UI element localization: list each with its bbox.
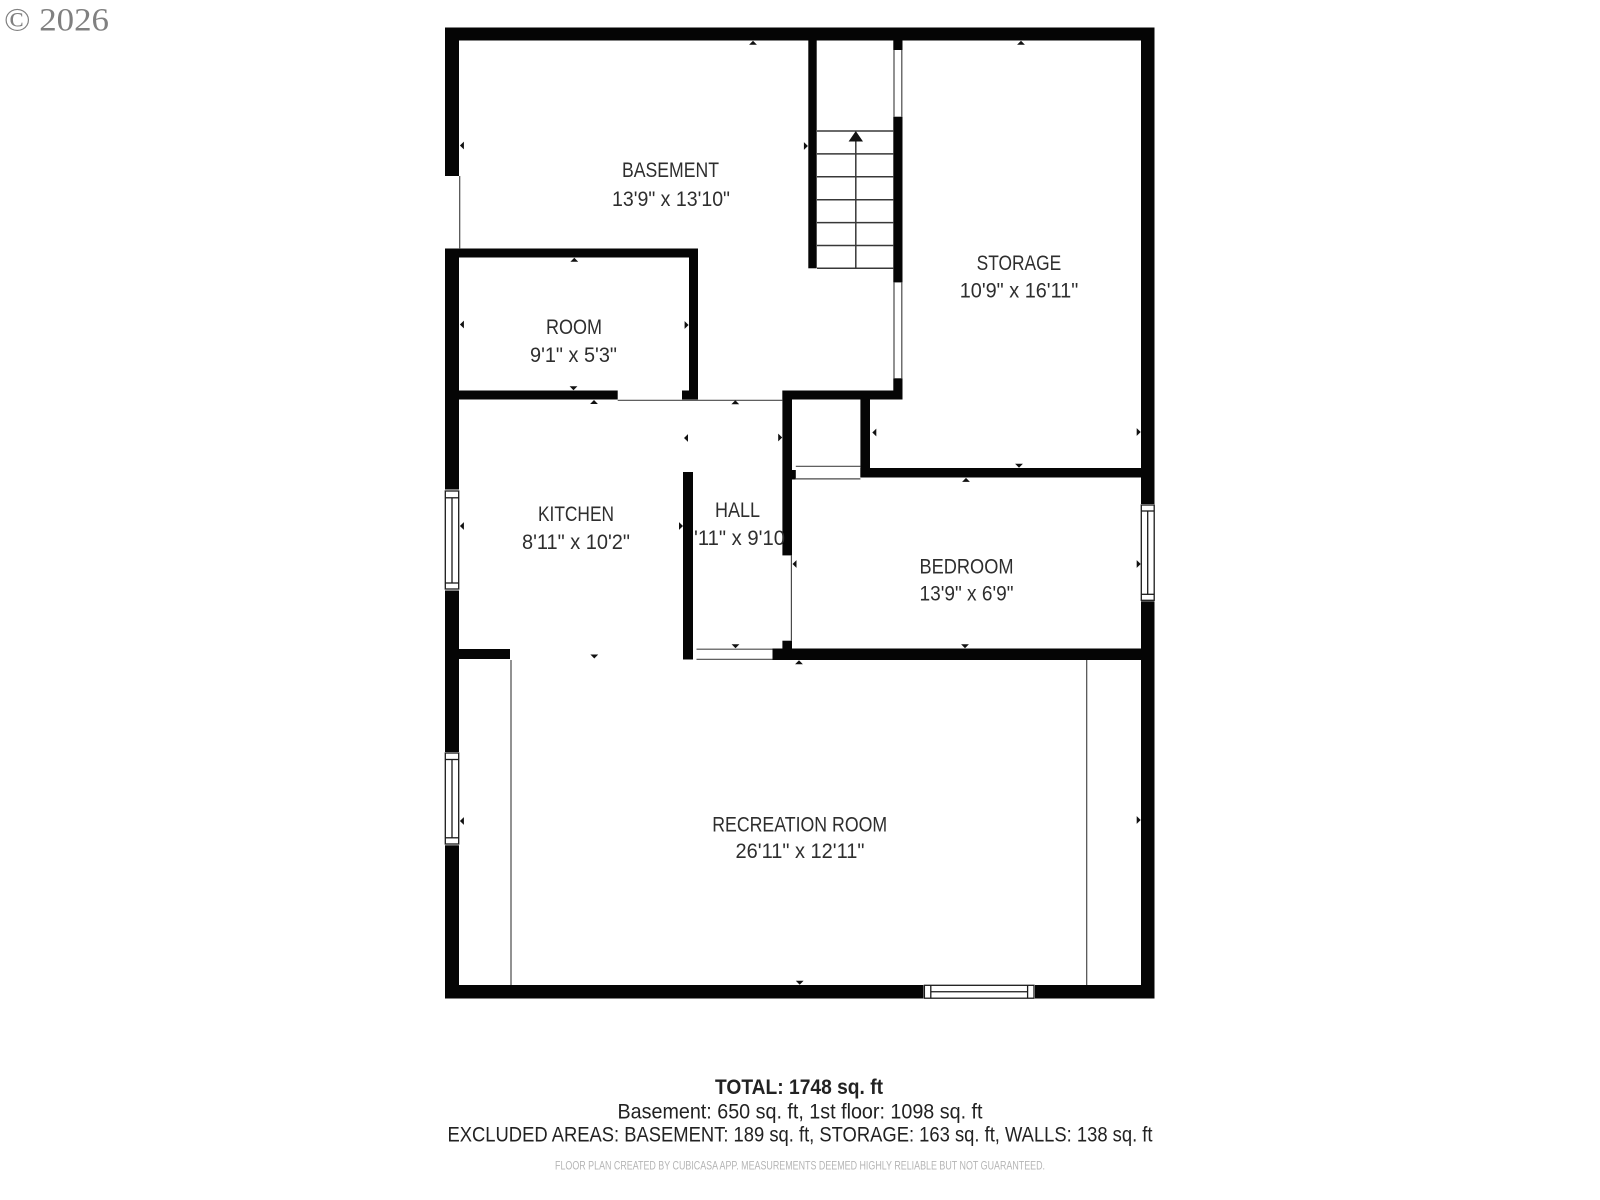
svg-text:BASEMENT: BASEMENT [622,159,719,182]
svg-text:EXCLUDED AREAS: BASEMENT: 189: EXCLUDED AREAS: BASEMENT: 189 sq. ft, ST… [448,1123,1153,1147]
svg-text:9'1" x 5'3": 9'1" x 5'3" [530,344,617,367]
svg-text:KITCHEN: KITCHEN [538,503,614,526]
svg-text:TOTAL: 1748 sq. ft: TOTAL: 1748 sq. ft [715,1075,883,1099]
svg-text:26'11" x 12'11": 26'11" x 12'11" [736,840,865,863]
svg-text:ROOM: ROOM [546,316,602,339]
svg-text:10'9" x 16'11": 10'9" x 16'11" [960,280,1079,303]
svg-text:13'9" x 6'9": 13'9" x 6'9" [920,583,1014,606]
svg-text:13'9" x 13'10": 13'9" x 13'10" [612,188,730,211]
svg-text:© 2026: © 2026 [4,3,109,39]
svg-text:'11" x 9'10: '11" x 9'10 [694,527,785,550]
svg-text:BEDROOM: BEDROOM [920,555,1014,578]
svg-text:RECREATION ROOM: RECREATION ROOM [712,814,887,837]
svg-text:HALL: HALL [715,499,760,522]
svg-text:FLOOR PLAN CREATED BY CUBICASA: FLOOR PLAN CREATED BY CUBICASA APP. MEAS… [555,1161,1045,1173]
svg-text:8'11" x 10'2": 8'11" x 10'2" [522,531,630,554]
svg-text:Basement: 650 sq. ft, 1st floo: Basement: 650 sq. ft, 1st floor: 1098 sq… [618,1100,983,1124]
svg-text:STORAGE: STORAGE [977,252,1062,275]
